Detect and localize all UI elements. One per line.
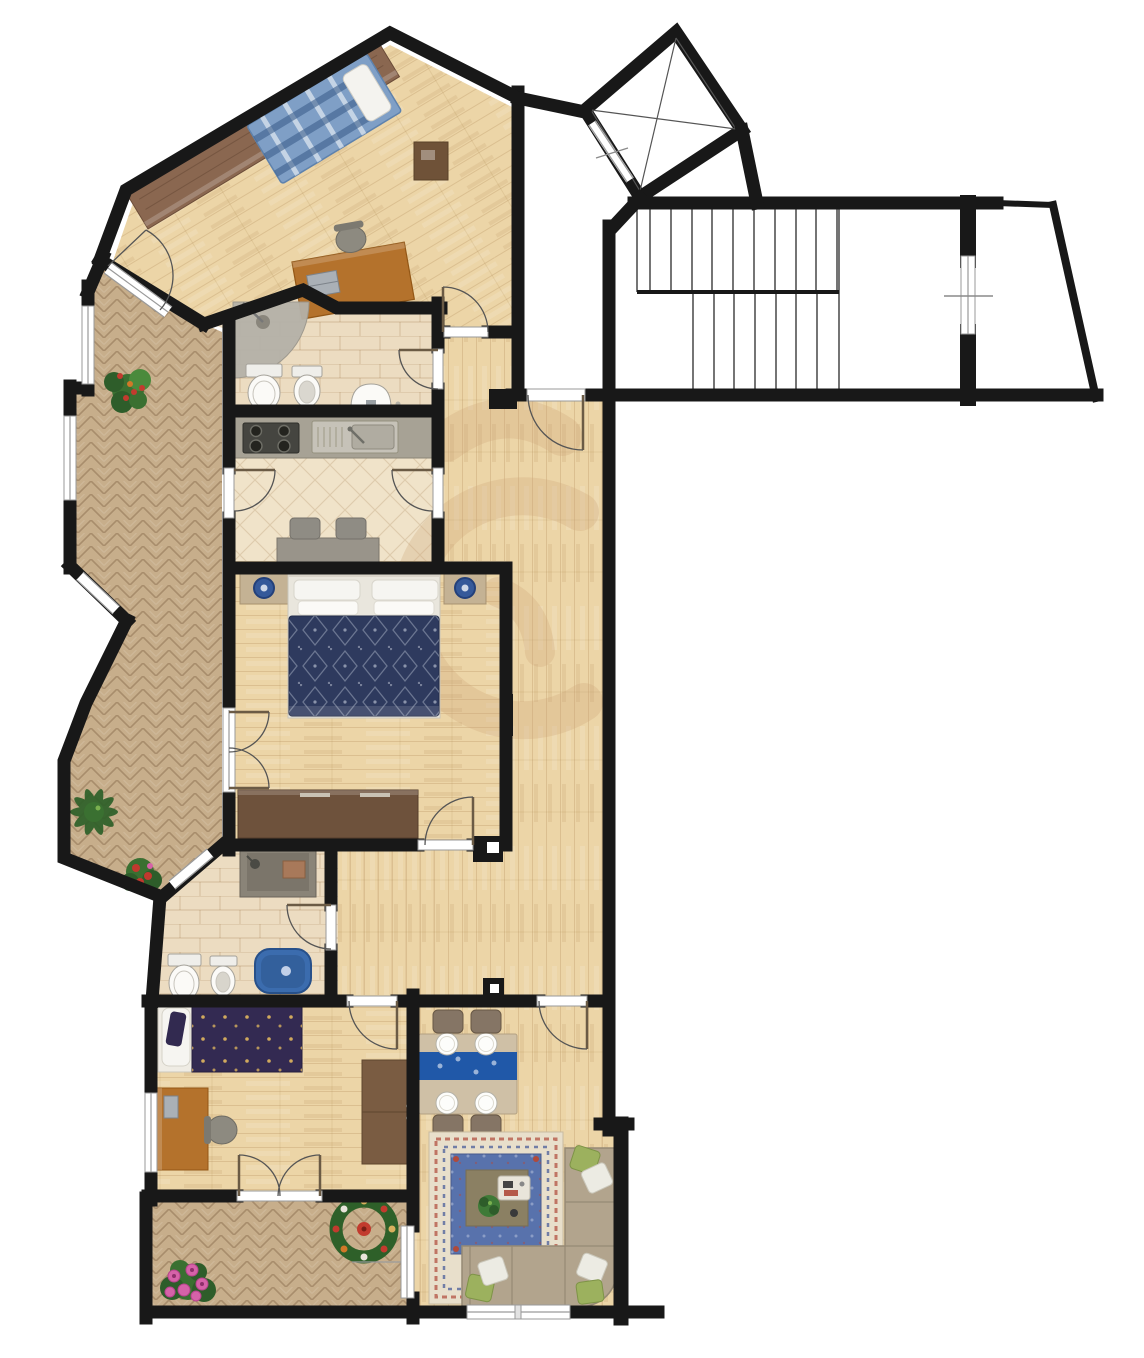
plate bbox=[475, 1033, 497, 1055]
toilet-icon bbox=[168, 954, 201, 1001]
shower-icon bbox=[240, 847, 316, 897]
duct-opening bbox=[490, 984, 499, 993]
stairs-lower-steps bbox=[693, 294, 817, 392]
double-bed bbox=[288, 570, 440, 718]
window bbox=[64, 416, 76, 500]
stairwell-wall bbox=[518, 98, 585, 112]
desk-2 bbox=[156, 1088, 208, 1170]
kitchen-sink-icon bbox=[312, 421, 398, 453]
bed-pillow bbox=[294, 580, 360, 600]
stairwell-wall bbox=[742, 130, 757, 203]
stairwell-wall bbox=[997, 203, 1053, 205]
stairwell-window bbox=[944, 256, 993, 334]
dining-chair bbox=[471, 1010, 501, 1033]
bed-pillow bbox=[374, 601, 434, 615]
window bbox=[82, 306, 94, 384]
elevator bbox=[585, 32, 742, 197]
wall-pier bbox=[489, 389, 517, 409]
wall-pier bbox=[500, 694, 513, 736]
bathtub-icon bbox=[255, 949, 311, 993]
window bbox=[467, 1305, 570, 1319]
bed-pillow bbox=[372, 580, 438, 600]
bidet-icon bbox=[210, 956, 237, 996]
duct-opening bbox=[487, 842, 499, 853]
stove-icon bbox=[243, 423, 299, 453]
table-runner bbox=[419, 1052, 517, 1080]
toilet-icon bbox=[246, 364, 282, 411]
wall bbox=[152, 897, 160, 1001]
sofa-pillow-green bbox=[576, 1279, 605, 1304]
single-bed-2 bbox=[158, 1002, 302, 1072]
plate bbox=[475, 1092, 497, 1114]
dining-table bbox=[419, 1033, 517, 1114]
wardrobe-2 bbox=[362, 1060, 414, 1164]
floor-plan-canvas bbox=[0, 0, 1144, 1358]
kitchen-chair bbox=[290, 518, 320, 539]
entry-landing-grain bbox=[434, 330, 516, 394]
kitchen-chair bbox=[336, 518, 366, 539]
dresser-wardrobe bbox=[238, 790, 418, 838]
stairs-upper-steps bbox=[650, 206, 837, 291]
wreath-plant-icon bbox=[333, 1198, 396, 1261]
desk-chair bbox=[207, 1116, 237, 1144]
dining-chair bbox=[433, 1010, 463, 1033]
stairs bbox=[637, 206, 839, 392]
nightstand-item bbox=[421, 150, 435, 160]
bed-pillow bbox=[298, 601, 358, 615]
desk-chair-back bbox=[204, 1116, 211, 1144]
stairwell-wall bbox=[1053, 205, 1096, 398]
bidet-icon bbox=[292, 366, 322, 407]
plate bbox=[436, 1033, 458, 1055]
window bbox=[145, 1093, 157, 1172]
floor-plan-page bbox=[0, 0, 1144, 1358]
plate bbox=[436, 1092, 458, 1114]
nightstand bbox=[414, 142, 448, 180]
